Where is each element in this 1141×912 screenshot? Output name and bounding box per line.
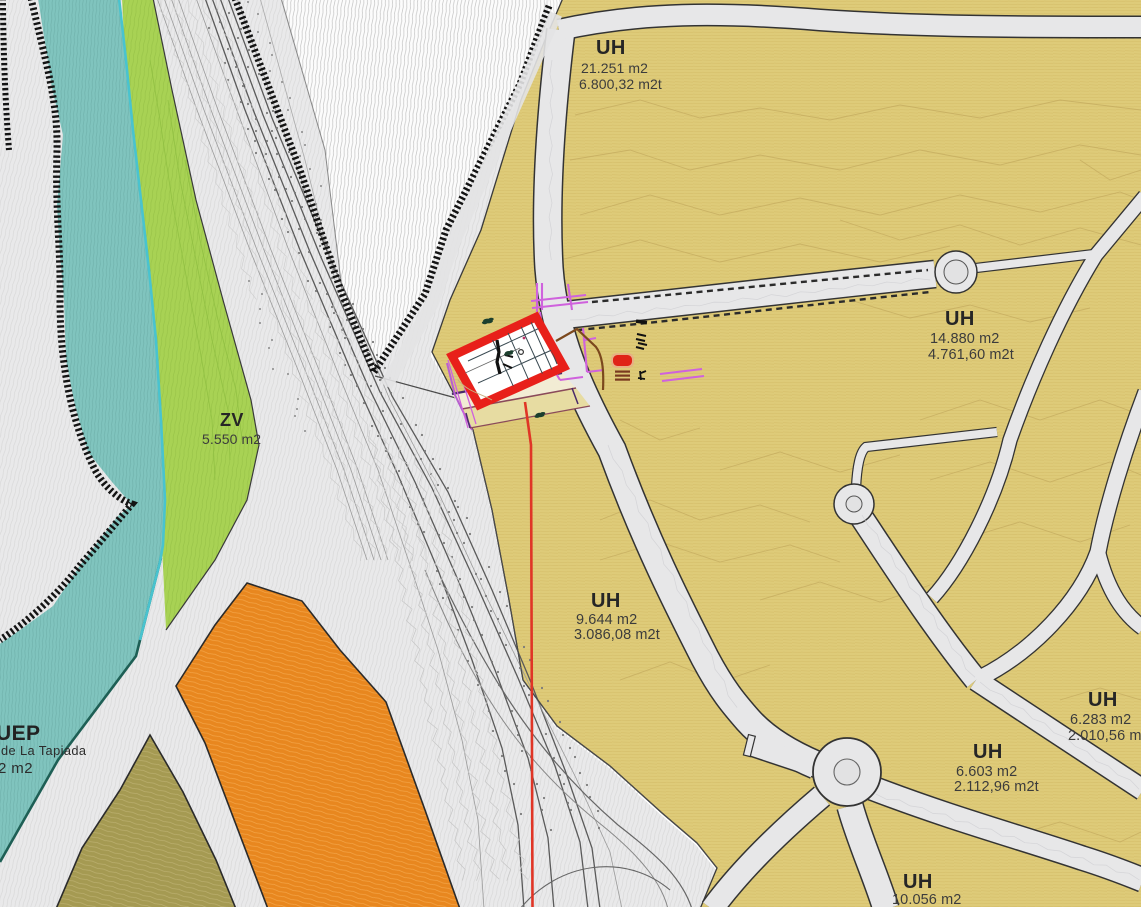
svg-text:UH: UH <box>945 308 975 330</box>
svg-text:4.761,60 m2t: 4.761,60 m2t <box>928 347 1014 363</box>
svg-text:UH: UH <box>596 37 626 59</box>
svg-text:6.283 m2: 6.283 m2 <box>1070 712 1131 728</box>
svg-text:2.112,96 m2t: 2.112,96 m2t <box>954 779 1039 795</box>
svg-text:3.086,08 m2t: 3.086,08 m2t <box>574 627 660 643</box>
svg-text:UH: UH <box>973 741 1003 763</box>
svg-text:UEP: UEP <box>0 722 40 745</box>
svg-text:2.010,56 m: 2.010,56 m <box>1068 728 1141 744</box>
svg-text:9.644 m2: 9.644 m2 <box>576 612 637 628</box>
svg-text:de La Tapiada: de La Tapiada <box>1 743 87 758</box>
svg-text:5.550 m2: 5.550 m2 <box>202 431 261 447</box>
svg-text:14.880 m2: 14.880 m2 <box>930 331 999 347</box>
svg-text:UH: UH <box>1088 689 1118 711</box>
svg-text:6.800,32 m2t: 6.800,32 m2t <box>579 76 662 92</box>
svg-text:10.056 m2: 10.056 m2 <box>892 892 961 907</box>
svg-text:21.251 m2: 21.251 m2 <box>581 60 648 76</box>
svg-text:6.603 m2: 6.603 m2 <box>956 764 1017 780</box>
svg-text:UH: UH <box>591 590 621 612</box>
svg-text:UH: UH <box>903 871 933 893</box>
svg-text:2 m2: 2 m2 <box>0 760 33 777</box>
svg-text:ZV: ZV <box>220 410 244 430</box>
